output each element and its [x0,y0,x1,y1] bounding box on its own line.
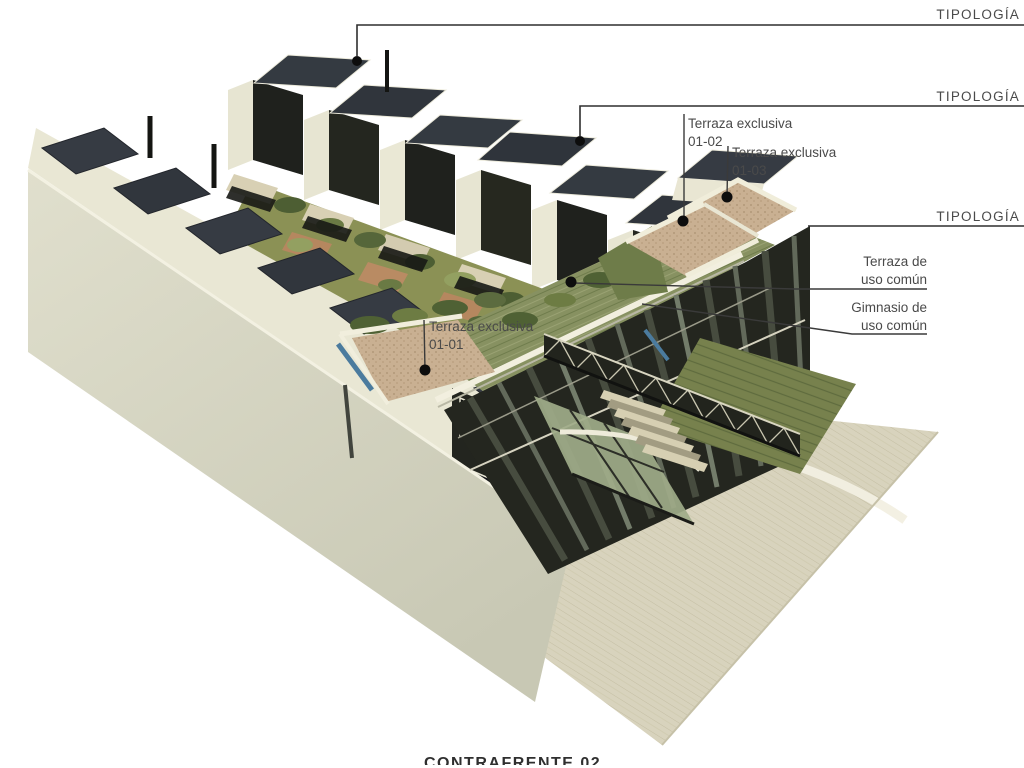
unit-facade [253,80,303,175]
leader-line-terraza-01-03 [727,146,728,197]
marker-dot-tipologia-2 [575,136,585,146]
party-wall [532,200,557,290]
party-wall [304,110,329,200]
leader-line-tipologia-1 [357,25,1024,56]
label-terraza-comun-line2: uso común [861,272,927,287]
bottom-caption: CONTRAFRENTE 02 [424,756,644,765]
label-terraza-01-01-line1: Terraza exclusiva [429,319,534,334]
shrub [354,232,386,248]
marker-dot-terraza-01-02 [678,216,689,227]
bottom-caption-text: CONTRAFRENTE 02 [424,756,644,765]
label-gimnasio-line1: Gimnasio de [851,300,927,315]
party-wall [380,140,405,230]
label-terraza-01-01-line2: 01-01 [429,337,464,352]
label-terraza-01-02-line1: Terraza exclusiva [688,116,793,131]
label-terraza-01-02-line2: 01-02 [688,134,723,149]
label-gimnasio-line2: uso común [861,318,927,333]
marker-dot-tipologia-1 [352,56,362,66]
shrub [287,238,313,252]
roof-planting [544,293,576,307]
label-tipologia-3: TIPOLOGÍA [936,209,1020,224]
terrace-planting [432,300,468,316]
party-wall [228,80,253,170]
label-terraza-01-03-line2: 01-03 [732,163,767,178]
party-wall [456,170,481,260]
label-terraza-comun-line1: Terraza de [863,254,927,269]
label-tipologia-1: TIPOLOGÍA [936,7,1020,22]
shrub [274,197,306,213]
label-tipologia-2: TIPOLOGÍA [936,89,1020,104]
unit-facade [481,170,531,265]
leader-line-tipologia-2 [580,106,1024,136]
architectural-rendering-page: TIPOLOGÍA TIPOLOGÍA TIPOLOGÍA Terraza ex… [0,0,1024,768]
label-terraza-01-03-line1: Terraza exclusiva [732,145,837,160]
leader-line-terraza-01-01 [424,320,425,370]
marker-dot-terraza-01-03 [722,192,733,203]
roof-panel [550,165,668,199]
marker-dot-terraza-01-01 [420,365,431,376]
unit-facade [329,110,379,205]
unit-facade [405,140,455,235]
marker-dot-terraza-comun [566,277,577,288]
terrace-planting [474,292,506,308]
axonometric-rendering: TIPOLOGÍA TIPOLOGÍA TIPOLOGÍA Terraza ex… [0,0,1024,768]
